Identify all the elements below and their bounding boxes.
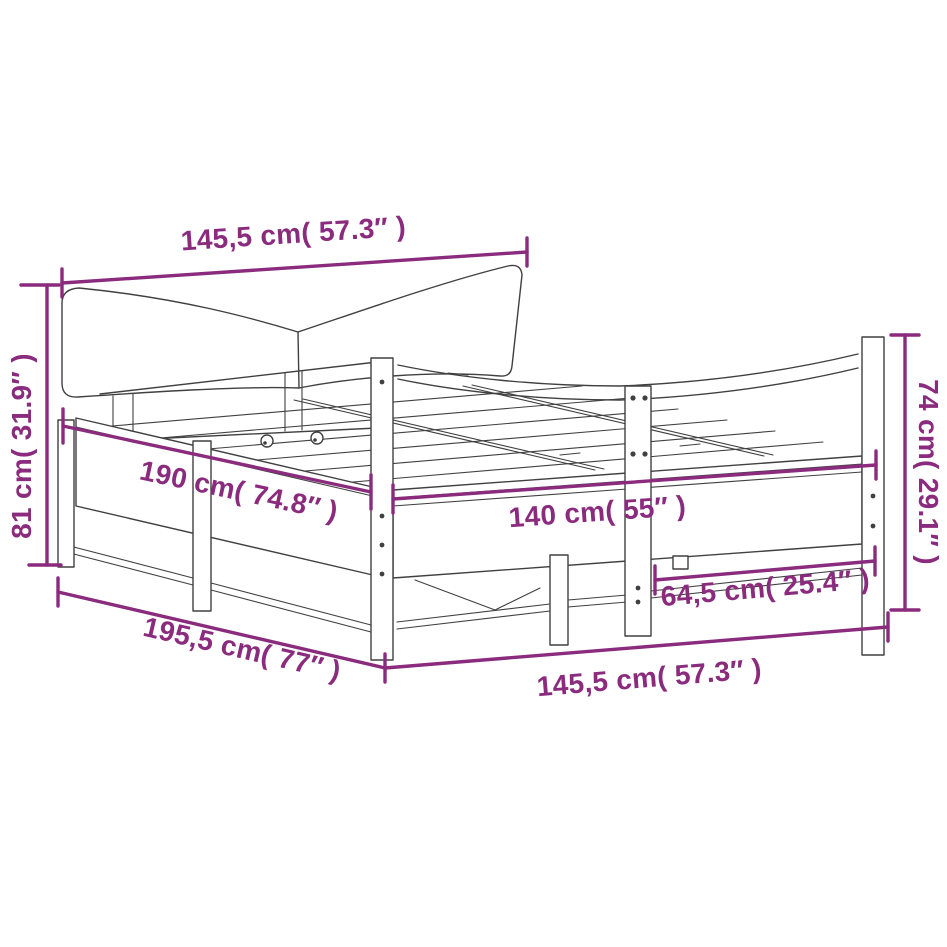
slat-clip <box>560 453 580 455</box>
support-foot <box>673 556 688 569</box>
screw-dot <box>630 451 635 456</box>
dim-right-height-label: 74 cm( 29.1″ ) <box>913 379 944 565</box>
center-support-leg <box>550 555 568 645</box>
slat-clip <box>680 444 700 446</box>
bed-frame-dimension-figure: 145,5 cm( 57.3″ ) 81 cm( 31.9″ ) 190 cm(… <box>0 0 947 947</box>
corner-post <box>371 358 393 660</box>
dim-outer-length-label: 195,5 cm( 77″ ) <box>140 611 343 687</box>
screw-dot <box>380 572 385 577</box>
mattress-stop-bracket <box>261 435 273 447</box>
product-dimension-diagram: 145,5 cm( 57.3″ ) 81 cm( 31.9″ ) 190 cm(… <box>0 0 947 947</box>
stretcher <box>397 604 550 622</box>
headboard-back-leg <box>58 420 74 567</box>
screw-dot <box>871 494 876 499</box>
slat <box>257 420 727 460</box>
dim-bottom-width-label: 145,5 cm( 57.3″ ) <box>536 653 763 702</box>
slat <box>112 386 582 426</box>
screw-dot <box>871 524 876 529</box>
stretcher <box>568 602 627 607</box>
screw-dot <box>380 543 385 548</box>
screw-dot <box>313 438 317 442</box>
stretcher <box>66 552 193 585</box>
screw-dot <box>380 514 385 519</box>
slat <box>160 398 630 438</box>
screw-dot <box>636 600 641 605</box>
dim-left-height-label: 81 cm( 31.9″ ) <box>6 353 37 539</box>
corner-brace <box>495 588 540 610</box>
headboard-panel <box>62 265 522 397</box>
dim-top-width-label: 145,5 cm( 57.3″ ) <box>180 211 407 257</box>
dim-top-width-line <box>62 252 527 283</box>
screw-dot <box>630 395 635 400</box>
stretcher <box>211 590 371 632</box>
screw-dot <box>642 395 647 400</box>
screw-dot <box>636 586 641 591</box>
screw-dot <box>642 451 647 456</box>
screw-dot <box>263 441 267 445</box>
stretcher <box>66 545 193 578</box>
stretcher <box>397 611 550 629</box>
screw-dot <box>380 380 385 385</box>
stretcher <box>568 595 627 600</box>
corner-brace <box>415 580 495 610</box>
stretcher <box>211 583 371 625</box>
slat <box>208 409 678 449</box>
mattress-stop-bracket <box>311 432 323 444</box>
headboard-center-seam <box>298 332 299 388</box>
